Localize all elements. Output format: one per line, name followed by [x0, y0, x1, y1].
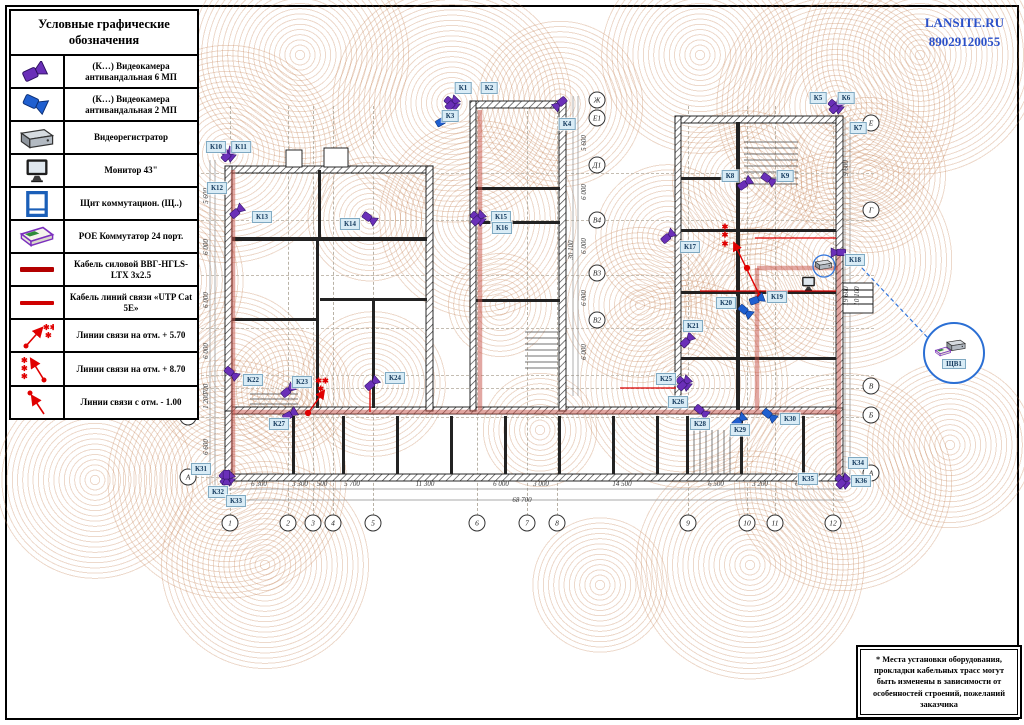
drawing-canvas: LANSITE.RU 89029120055 Условные графичес… [0, 0, 1024, 725]
legend-row: Видеорегистратор [11, 122, 197, 155]
camera-label-К14: К14 [340, 218, 360, 230]
dimension-label: 6 500 [708, 480, 724, 488]
dimension-label: 500 [317, 480, 328, 488]
axis-bubble-8: 8 [549, 515, 566, 532]
axis-bubble-5: 5 [365, 515, 382, 532]
dimension-label: 6 000 [580, 184, 588, 200]
axis-bubble-12: 12 [825, 515, 842, 532]
axis-bubble-Ж: Ж [589, 92, 606, 109]
camera-label-К33: К33 [226, 495, 246, 507]
camera-label-К20: К20 [716, 297, 736, 309]
camera-2mp-icon [11, 89, 65, 120]
camera-label-К22: К22 [243, 374, 263, 386]
camera-label-К34: К34 [848, 457, 868, 469]
svg-text:✱: ✱ [45, 331, 52, 340]
legend-row: POE Коммутатор 24 порт. [11, 221, 197, 254]
elevation-mark: ✱✱ ✱ [315, 378, 328, 395]
camera-label-К8: К8 [722, 170, 739, 182]
dimension-label: 10 100 [853, 286, 861, 305]
dimension-label: 6 000 [580, 290, 588, 306]
camera-label-К23: К23 [292, 376, 312, 388]
brand-phone: 89029120055 [925, 33, 1004, 52]
dimension-label: 5 700 [344, 480, 360, 488]
axis-bubble-10: 10 [739, 515, 756, 532]
camera-label-К9: К9 [777, 170, 794, 182]
camera-label-К4: К4 [559, 118, 576, 130]
dimension-label: 9 600 [842, 160, 850, 176]
dimension-label: 700 [202, 384, 210, 395]
legend-row: ✱✱✱Линии связи на отм. + 5.70 [11, 320, 197, 353]
dimension-label: 6 300 [251, 480, 267, 488]
camera-6mp-icon [221, 470, 234, 487]
dimension-label: 11 300 [416, 480, 435, 488]
legend-label: Линии связи на отм. + 8.70 [65, 353, 197, 385]
camera-label-К19: К19 [767, 291, 787, 303]
legend-row: Монитор 43" [11, 155, 197, 188]
camera-label-К28: К28 [690, 418, 710, 430]
dimension-label: 5 600 [580, 135, 588, 151]
dimension-label: 3 200 [752, 480, 768, 488]
camera-label-К24: К24 [385, 372, 405, 384]
axis-bubble-2: 2 [280, 515, 297, 532]
axis-bubble-9: 9 [680, 515, 697, 532]
dimension-label: 6 000 [202, 239, 210, 255]
axis-bubble-Е1: Е1 [589, 110, 606, 127]
camera-6mp-icon [11, 56, 65, 87]
camera-label-К6: К6 [838, 92, 855, 104]
camera-label-К1: К1 [455, 82, 472, 94]
camera-label-К29: К29 [730, 424, 750, 436]
axis-bubble-В2: В2 [589, 312, 606, 329]
camera-label-К17: К17 [680, 241, 700, 253]
camera-label-К25: К25 [656, 373, 676, 385]
dimension-label: 6 000 [580, 238, 588, 254]
camera-label-К18: К18 [845, 254, 865, 266]
axis-bubble-В: В [863, 378, 880, 395]
legend-label: Видеорегистратор [65, 122, 197, 153]
axis-bubble-Г: Г [863, 202, 880, 219]
camera-label-К10: К10 [206, 141, 226, 153]
legend-label: Монитор 43" [65, 155, 197, 186]
brand-block: LANSITE.RU 89029120055 [925, 14, 1004, 52]
dimension-total: 30 100 [567, 240, 575, 259]
utp-cable-icon [11, 287, 65, 318]
camera-label-К21: К21 [683, 320, 703, 332]
camera-label-К11: К11 [231, 141, 251, 153]
camera-label-К16: К16 [492, 222, 512, 234]
link-m100-icon [11, 387, 65, 418]
svg-text:✱: ✱ [21, 372, 28, 381]
axis-bubble-3: 3 [305, 515, 322, 532]
dimension-label: 6 600 [202, 439, 210, 455]
note-text: * Места установки оборудования, прокладк… [860, 649, 1018, 715]
camera-label-К13: К13 [252, 211, 272, 223]
axis-bubble-Д1: Д1 [589, 157, 606, 174]
legend-title: Условные графические обозначения [11, 11, 197, 56]
camera-label-К12: К12 [207, 182, 227, 194]
dimension-label: 1 200 [202, 393, 210, 409]
dimension-label: 6 000 [493, 480, 509, 488]
legend-row: ✱✱✱Линии связи на отм. + 8.70 [11, 353, 197, 387]
legend: Условные графические обозначения (К…) Ви… [9, 9, 199, 420]
camera-label-К2: К2 [481, 82, 498, 94]
legend-label: (К…) Видеокамера антивандальная 6 МП [65, 56, 197, 87]
camera-label-К30: К30 [780, 413, 800, 425]
cabinet-label: ЩВ1 [942, 359, 966, 369]
link-570-icon: ✱✱✱ [11, 320, 65, 351]
dimension-label: 6 000 [202, 292, 210, 308]
legend-row: Кабель силовой ВВГ-НГLS-LTX 3х2.5 [11, 254, 197, 287]
axis-bubble-1: 1 [222, 515, 239, 532]
dimension-label: 6 000 [202, 343, 210, 359]
axis-bubble-В4: В4 [589, 212, 606, 229]
axis-bubble-11: 11 [767, 515, 784, 532]
legend-label: Щит коммутацион. (Щ..) [65, 188, 197, 219]
axis-bubble-6: 6 [469, 515, 486, 532]
dimension-label: 19 600 [842, 286, 850, 305]
dimension-label: 6 000 [580, 344, 588, 360]
camera-label-К31: К31 [191, 463, 211, 475]
legend-row: Кабель линий связи «UTP Cat 5E» [11, 287, 197, 320]
monitor-icon [11, 155, 65, 186]
legend-label: Линии связи с отм. - 1.00 [65, 387, 197, 418]
link-870-icon: ✱✱✱ [11, 353, 65, 385]
dimension-label: 3 300 [292, 480, 308, 488]
callout-icons [934, 338, 974, 358]
camera-label-К3: К3 [442, 110, 459, 122]
cabinet-callout: ЩВ1 [923, 322, 985, 384]
legend-label: POE Коммутатор 24 порт. [65, 221, 197, 252]
axis-bubble-7: 7 [519, 515, 536, 532]
note-box: * Места установки оборудования, прокладк… [856, 645, 1022, 719]
legend-label: (К…) Видеокамера антивандальная 2 МП [65, 89, 197, 120]
camera-label-К26: К26 [668, 396, 688, 408]
legend-row: Щит коммутацион. (Щ..) [11, 188, 197, 221]
camera-label-К27: К27 [269, 418, 289, 430]
legend-label: Линии связи на отм. + 5.70 [65, 320, 197, 351]
axis-bubble-Б: Б [863, 407, 880, 424]
elevation-mark: ✱ ✱ ✱ [722, 223, 729, 248]
camera-label-К35: К35 [798, 473, 818, 485]
power-cable-icon [11, 254, 65, 285]
camera-6mp-icon [830, 247, 847, 260]
dvr-icon [11, 122, 65, 153]
camera-label-К7: К7 [850, 122, 867, 134]
panel-icon [11, 188, 65, 219]
poe-icon [11, 221, 65, 252]
legend-label: Кабель силовой ВВГ-НГLS-LTX 3х2.5 [65, 254, 197, 285]
camera-label-К5: К5 [810, 92, 827, 104]
axis-bubble-4: 4 [325, 515, 342, 532]
legend-rows: (К…) Видеокамера антивандальная 6 МП(К…)… [11, 56, 197, 418]
legend-row: (К…) Видеокамера антивандальная 2 МП [11, 89, 197, 122]
dimension-label: 3 000 [533, 480, 549, 488]
dimension-label: 14 500 [612, 480, 631, 488]
legend-label: Кабель линий связи «UTP Cat 5E» [65, 287, 197, 318]
dimension-total: 68 700 [512, 496, 531, 504]
axis-bubble-В3: В3 [589, 265, 606, 282]
camera-label-К36: К36 [851, 475, 871, 487]
brand-site: LANSITE.RU [925, 14, 1004, 33]
legend-row: Линии связи с отм. - 1.00 [11, 387, 197, 418]
legend-row: (К…) Видеокамера антивандальная 6 МП [11, 56, 197, 89]
